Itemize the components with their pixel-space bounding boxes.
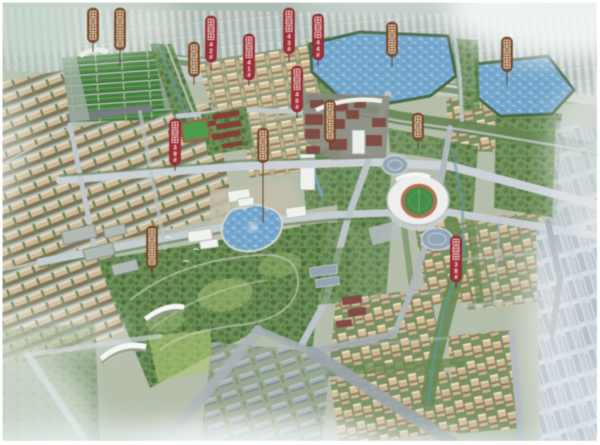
svg-text:#: # xyxy=(173,157,177,164)
svg-text:#: # xyxy=(316,52,320,59)
svg-text:#: # xyxy=(295,104,299,111)
svg-text:#: # xyxy=(454,274,458,281)
svg-text:#: # xyxy=(287,46,291,53)
svg-text:#: # xyxy=(209,54,213,61)
svg-text:#: # xyxy=(247,72,251,79)
